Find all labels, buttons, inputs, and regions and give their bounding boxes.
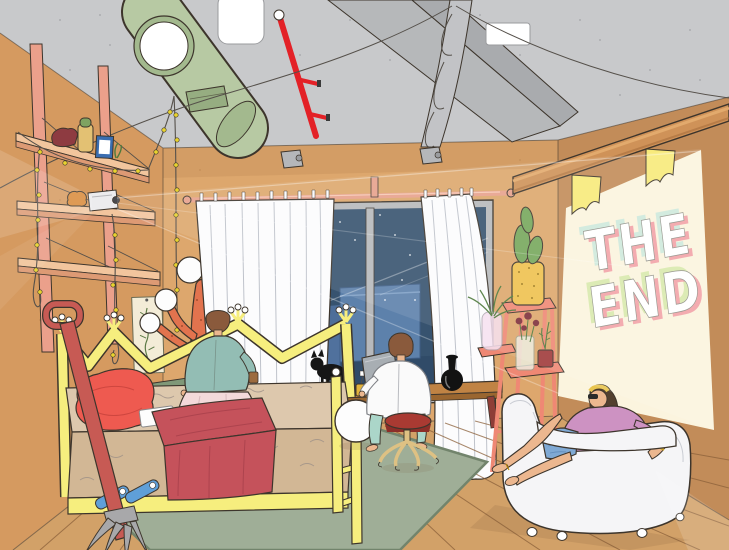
projector <box>88 190 120 211</box>
ceiling-light-panel-left <box>218 0 264 44</box>
red-blanket <box>152 398 276 500</box>
storage-jar <box>78 118 93 152</box>
stool-shadow <box>382 463 434 473</box>
desk-person-hair <box>389 333 413 357</box>
duct-opening <box>140 22 188 70</box>
picture-frame <box>95 136 113 159</box>
cat-head <box>311 358 324 371</box>
sunglasses <box>588 394 598 399</box>
scene: THE THE THE END END END <box>0 0 729 550</box>
person-bed-hair <box>206 311 230 333</box>
lamp-sphere-1 <box>177 257 203 283</box>
lamp-sphere-2 <box>155 289 177 311</box>
lamp-sphere-3 <box>140 313 160 333</box>
room-illustration: THE THE THE END END END <box>0 0 729 550</box>
stool-cushion <box>385 413 431 429</box>
coffee-cup <box>249 372 258 383</box>
cap-figurine <box>52 128 78 146</box>
